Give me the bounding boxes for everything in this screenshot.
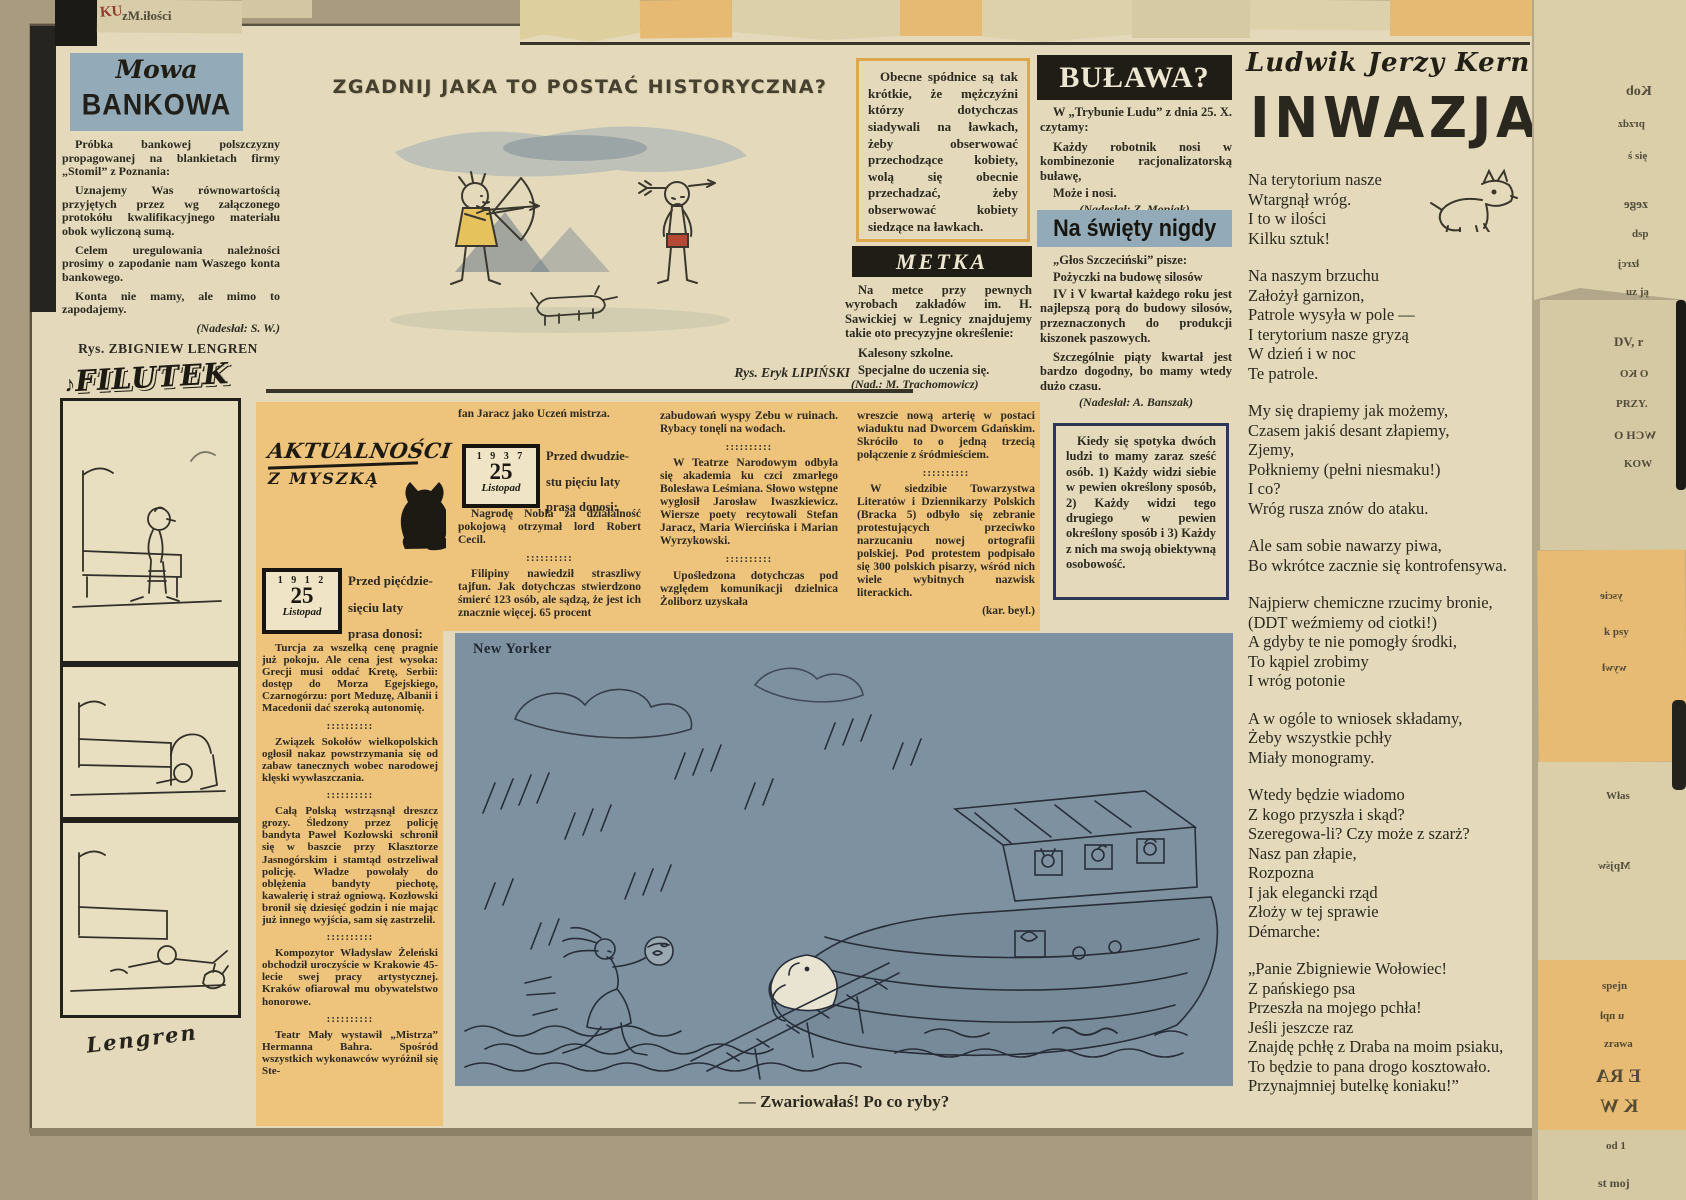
item-separator: :::::::::: [857,467,1035,479]
mowa-bankowa-text: Próbka bankowej polszczyzny propagowanej… [62,138,280,336]
swiety-credit: (Nadesłał: A. Banszak) [1040,395,1232,409]
page-top-rule [520,42,1530,45]
news-item: Nagrodę Nobla za działalność pokojową ot… [458,508,641,547]
aktualnosci-col4-items: wreszcie nową arterię w postaci wiaduktu… [857,410,1035,626]
aktualnosci-col2-items: Nagrodę Nobla za działalność pokojową ot… [458,508,641,626]
lipinski-credit: Rys. Eryk LIPIŃSKI [620,365,850,381]
torn-piece [1534,0,1686,300]
news-item: W siedzibie Towarzystwa Literatów i Dzie… [857,483,1035,600]
filutek-drawing-3 [63,823,232,1009]
swiety-quote1: Pożyczki na budowę silosów [1040,270,1232,285]
news-item: Upośledzona dotychczas pod względem komu… [660,570,838,609]
edge-dark-blob [1676,300,1686,490]
spodnice-text: Obecne spódnice są tak krótkie, że mężcz… [868,69,1018,235]
edge-dark-blob [1672,700,1686,790]
newspaper-scan: Mowa BANKOWA Próbka bankowej polszczyzny… [0,0,1686,1200]
aktualnosci-col2-lead: fan Jaracz jako Uczeń mistrza. [458,408,643,421]
page-bottom-shadow [30,1128,1532,1136]
edge-fragment: dsp [1632,228,1649,240]
calendar-month: Listopad [266,606,338,618]
poem-title: INWAZJA [1250,86,1523,151]
poem-stanza: Najpierw chemiczne rzucimy bronie, (DDT … [1248,593,1540,691]
zgadnij-cartoon [325,112,795,362]
metka-note: Specjalne do uczenia się. [845,363,1032,377]
torn-piece [1250,0,1390,30]
edge-fragment: od 1 [1606,1140,1626,1152]
page-left-dark-edge [30,26,56,312]
calendar-day: 25 [266,586,338,606]
news-item: W Teatrze Narodowym odbyła się akademia … [660,457,838,548]
cat-icon [390,476,446,554]
torn-piece [242,0,312,18]
torn-piece [982,0,1132,42]
filutek-panel-2 [60,664,241,820]
edge-fragment: E RA [1596,1066,1641,1088]
edge-fragment: łzrcj [1618,258,1639,270]
poem-author: Ludwik Jerzy Kern [1246,48,1530,78]
metka-header: METKA [852,246,1032,277]
poem-stanza: Wtedy będzie wiadomo Z kogo przyszła i s… [1248,785,1540,941]
bulawa-header: BUŁAWA? [1037,55,1232,100]
edge-fragment: DV, r [1614,334,1643,350]
item-separator: :::::::::: [262,931,438,943]
edge-fragment: u npł [1600,1010,1624,1022]
paragraph: Celem uregulowania należności prosimy o … [62,244,280,285]
news-item: Filipiny nawiedził straszliwy tajfun. Ja… [458,568,641,620]
lengren-credit: Rys. ZBIGNIEW LENGREN [56,341,280,357]
bulawa-text: W „Trybunie Ludu” z dnia 25. X. czytamy:… [1040,105,1232,216]
paragraph: Uznajemy Was równowartością przyjętych p… [62,184,280,239]
bulawa-note: Może i nosi. [1040,186,1232,201]
paragraph: Na metce przy pewnych wyrobach zakładów … [845,283,1032,341]
torn-piece [732,0,900,40]
swiety-title: Na święty nigdy [1053,215,1216,243]
edge-fragment: st moj [1598,1176,1630,1191]
torn-piece [1390,0,1532,36]
aktualnosci-col1-items: Turcja za wszelką cenę pragnie już pokoj… [262,642,438,1120]
bulawa-quote: Każdy robotnik nosi w kombinezonie racjo… [1040,140,1232,184]
metka-credit: (Nad.: M. Trachomowicz) [845,378,1032,392]
edge-fragment: Mpjśw [1598,860,1630,872]
torn-piece [900,0,982,36]
edge-fragment: ś się [1628,150,1647,162]
arrow-head-figure [639,180,715,283]
edge-fragment: Kob [1626,84,1652,100]
swiety-header: Na święty nigdy [1037,210,1232,247]
mowa-script-title: Mowa [70,55,243,85]
edge-fragment: PRZY. [1616,398,1648,410]
edge-fragment: Włas [1606,790,1630,802]
calendar-1912: 1 9 1 2 25 Listopad [262,568,342,634]
edge-fragment: K W [1600,1096,1638,1118]
torn-piece [1132,0,1250,38]
torn-piece [640,0,732,38]
poem-stanzas: Na terytorium nasze Wtargnął wróg. I to … [1248,170,1540,1114]
metka-quote: Kalesony szkolne. [845,346,1032,360]
news-item: Turcja za wszelką cenę pragnie już pokoj… [262,642,438,715]
edge-fragment: zM.iłości [122,8,171,24]
edge-fragment: przdz [1618,118,1645,130]
edge-fragment: uz ją [1626,286,1649,298]
mowa-credit: (Nadesłał: S. W.) [62,322,280,336]
edge-fragment: zege [1624,196,1648,212]
intro-1912: Przed pięćdzie- sięciu laty prasa donosi… [348,568,448,648]
col4-credit: (kar. beyl.) [857,605,1035,618]
filutek-drawing-1 [63,401,232,655]
kiedy-box: Kiedy się spotyka dwóch ludzi to mamy za… [1053,423,1229,600]
zgadnij-title: ZGADNIJ JAKA TO POSTAĆ HISTORYCZNA? [300,76,860,98]
paragraph: „Głos Szczeciński” pisze: [1040,253,1232,268]
filutek-panel-1 [60,398,241,664]
bulawa-title: BUŁAWA? [1059,61,1209,95]
newyorker-cartoon: New Yorker [455,633,1233,1086]
item-separator: :::::::::: [458,552,641,564]
poem-stanza: A w ogóle to wniosek składamy, Żeby wszy… [1248,709,1540,768]
news-item: Całą Polską wstrząsnął dreszcz grozy. Śl… [262,805,438,926]
edge-fragment: wywł [1602,662,1626,674]
mowa-bankowa-header: Mowa BANKOWA [70,53,243,131]
torn-piece [55,0,97,46]
poem-stanza: Na terytorium nasze Wtargnął wróg. I to … [1248,170,1540,248]
calendar-day: 25 [466,462,536,482]
poem-stanza: „Panie Zbigniewie Wołowiec! Z pańskiego … [1248,959,1540,1096]
edge-fragment: spejn [1602,980,1627,992]
edge-fragment: WCH O [1614,428,1656,443]
metka-title: METKA [896,249,988,275]
torn-piece [1537,549,1686,762]
aktualnosci-col3-items: zabudowań wyspy Zebu w ruinach. Rybacy t… [660,410,838,626]
paragraph: Konta nie mamy, ale mimo to zapodajemy. [62,290,280,317]
newyorker-label: New Yorker [473,641,552,658]
edge-fragment: KOW [1624,458,1652,470]
item-separator: :::::::::: [262,789,438,801]
metka-text: Na metce przy pewnych wyrobach zakładów … [845,283,1032,392]
filutek-panel-3 [60,820,241,1018]
bankowa-title: BANKOWA [70,83,243,126]
filutek-drawing-2 [63,667,232,811]
edge-fragment: zrawa [1604,1038,1633,1050]
edge-fragment: k psy [1604,626,1629,638]
news-item: wreszcie nową arterię w postaci wiaduktu… [857,410,1035,462]
news-item: Kompozytor Władysław Żeleński obchodził … [262,947,438,1007]
torn-piece [520,0,640,42]
item-separator: :::::::::: [262,720,438,732]
calendar-1937: 1 9 3 7 25 Listopad [462,444,540,508]
poem-stanza: Ale sam sobie nawarzy piwa, Bo wkrótce z… [1248,536,1540,575]
news-item: Teatr Mały wystawił „Mistrza” Hermanna B… [262,1029,438,1077]
paragraph: Próbka bankowej polszczyzny propagowanej… [62,138,280,179]
swiety-quote2: IV i V kwartał każdego roku jest najleps… [1040,287,1232,346]
item-separator: :::::::::: [660,553,838,565]
newyorker-caption: — Zwariowałaś! Po co ryby? [455,1092,1233,1112]
section-rule [266,389,913,393]
news-item: Związek Sokołów wielkopolskich ogłosił n… [262,736,438,784]
paragraph: W „Trybunie Ludu” z dnia 25. X. czytamy: [1040,105,1232,135]
spodnice-box: Obecne spódnice są tak krótkie, że mężcz… [856,58,1030,242]
swiety-text: „Głos Szczeciński” pisze: Pożyczki na bu… [1040,253,1232,409]
edge-fragment: KU [99,3,123,22]
poem-stanza: Na naszym brzuchu Założył garnizon, Patr… [1248,266,1540,383]
calendar-month: Listopad [466,482,536,494]
aktualnosci-logo-line1: AKTUALNOŚCI [266,438,446,463]
noahs-ark-drawing [455,633,1233,1086]
item-separator: :::::::::: [660,441,838,453]
item-separator: :::::::::: [262,1013,438,1025]
edge-fragment: yscie [1600,590,1623,602]
news-item: zabudowań wyspy Zebu w ruinach. Rybacy t… [660,410,838,436]
edge-fragment: O KO [1620,368,1648,380]
poem-stanza: My się drapiemy jak możemy, Czasem jakiś… [1248,401,1540,518]
torn-piece [1540,300,1686,550]
swiety-note: Szczególnie piąty kwartał jest bardzo do… [1040,350,1232,394]
kiedy-text: Kiedy się spotyka dwóch ludzi to mamy za… [1066,434,1216,572]
